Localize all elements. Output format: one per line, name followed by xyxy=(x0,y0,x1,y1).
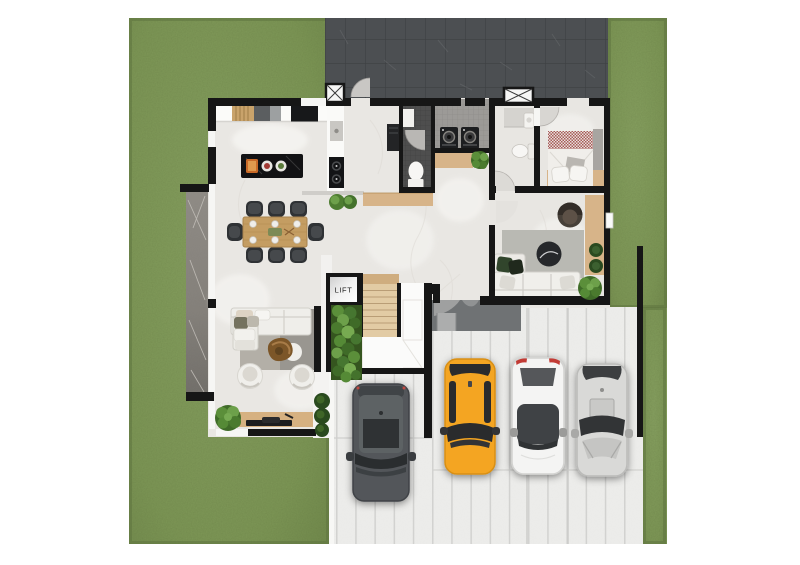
svg-text:LIFT: LIFT xyxy=(335,286,353,295)
